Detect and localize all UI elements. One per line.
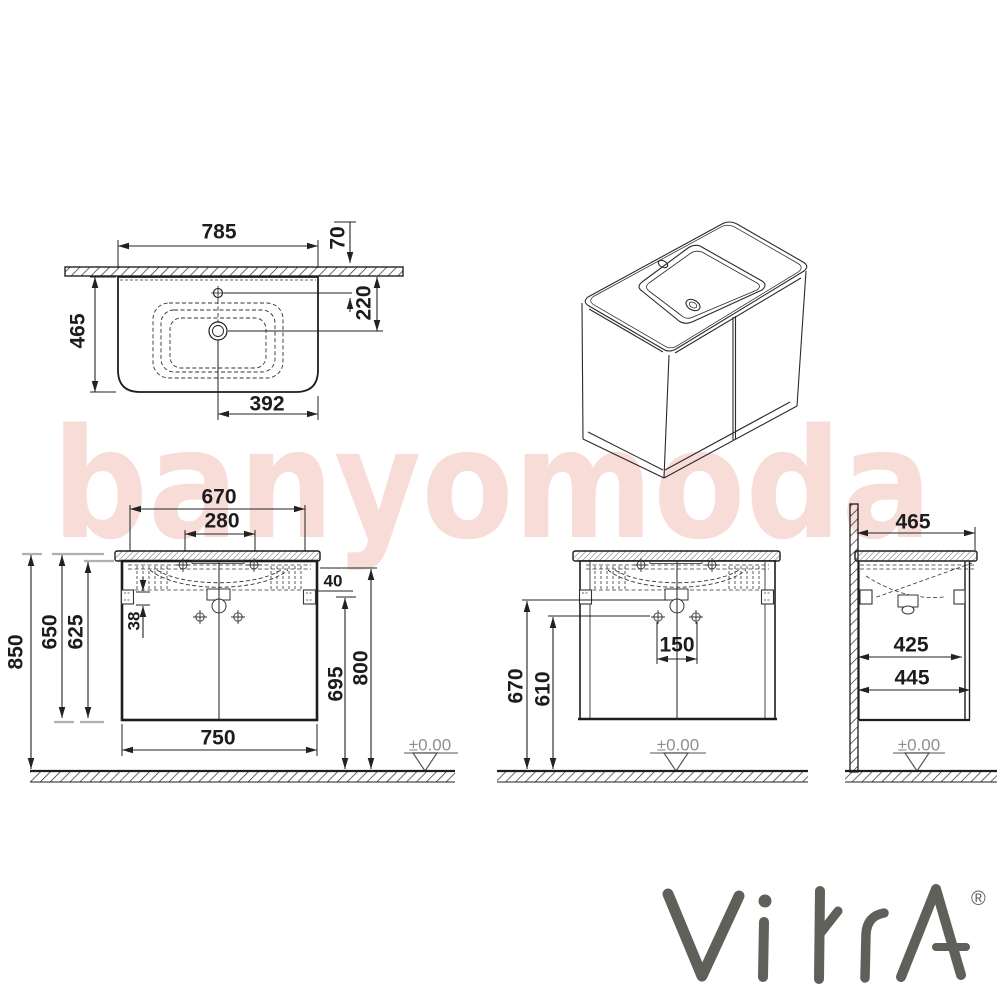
ground-level-label: ±0.00 xyxy=(898,737,940,754)
registered-mark: ® xyxy=(971,888,986,910)
i-dot xyxy=(759,895,772,908)
washbasin-top-view xyxy=(65,222,403,420)
dim-siphon-height: 670 xyxy=(506,668,527,703)
ground-level-symbol xyxy=(664,753,688,771)
dim-washbasin-width: 670 xyxy=(201,487,236,508)
dim-faucet-spacing: 280 xyxy=(204,511,239,532)
technical-drawing-page: banyomoda xyxy=(0,0,1000,1000)
dim-cabinet-width: 750 xyxy=(200,728,235,749)
vanity-isometric-view xyxy=(582,222,807,478)
drawing-layer: ® xyxy=(0,0,1000,1000)
dim-overall-height: 850 xyxy=(6,634,27,669)
dim-bracket-offset: 38 xyxy=(126,612,143,631)
ground-level-symbol xyxy=(413,753,437,771)
dim-overall-width: 785 xyxy=(201,222,236,243)
dim-overall-depth: 445 xyxy=(894,668,929,689)
dim-depth: 465 xyxy=(68,313,89,348)
dim-clearance: 40 xyxy=(324,573,343,590)
dim-mount-height: 800 xyxy=(351,650,372,685)
dim-drain-height: 610 xyxy=(533,671,554,706)
dim-drain-to-wall: 220 xyxy=(354,285,375,320)
dim-drain-to-edge: 392 xyxy=(249,394,284,415)
dim-faucet-to-wall: 70 xyxy=(328,226,349,249)
dim-hole-spacing: 150 xyxy=(659,635,694,656)
dim-cabinet-height: 625 xyxy=(66,614,87,649)
dim-cabinet-depth: 425 xyxy=(893,635,928,656)
vitra-logo: ® xyxy=(668,888,986,979)
vanity-front-view-2 xyxy=(497,551,808,782)
dim-door-height: 695 xyxy=(326,666,347,701)
dim-height-with-basin: 650 xyxy=(40,614,61,649)
dim-side-depth: 465 xyxy=(895,512,930,533)
ground-level-label: ±0.00 xyxy=(409,737,451,754)
ground-level-label: ±0.00 xyxy=(657,737,699,754)
ground-level-symbol xyxy=(905,753,929,771)
vitra-wordmark xyxy=(668,889,966,979)
